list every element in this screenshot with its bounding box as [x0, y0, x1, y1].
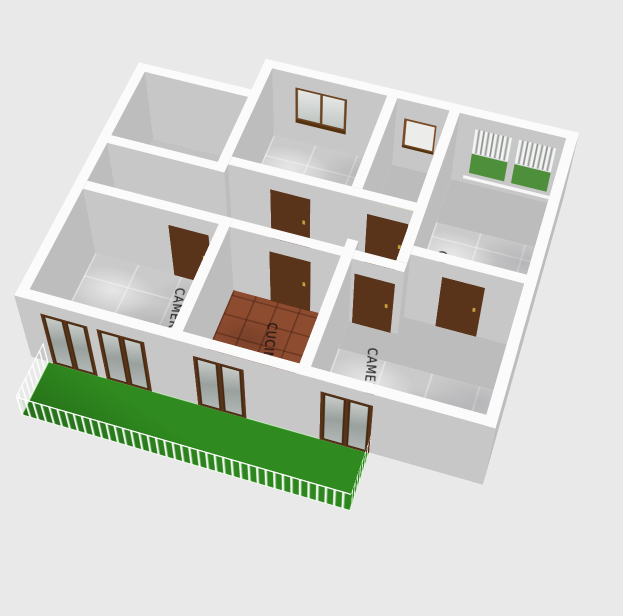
glass-pane [346, 400, 370, 451]
glass-pane [322, 96, 345, 129]
floor-plan-3d-view[interactable]: CAMERACAMERACAMERACUCINACAMERA [0, 0, 623, 616]
glass-pane [196, 358, 221, 410]
glass-pane [220, 365, 244, 417]
building-3d-model: CAMERACAMERACAMERACUCINACAMERA [1, 100, 564, 552]
door-bedroom-bottom [352, 273, 395, 333]
glass-pane [322, 393, 345, 444]
door-bedroom-right [435, 277, 485, 337]
glass-pane [298, 90, 320, 123]
glass-pane [404, 120, 434, 151]
